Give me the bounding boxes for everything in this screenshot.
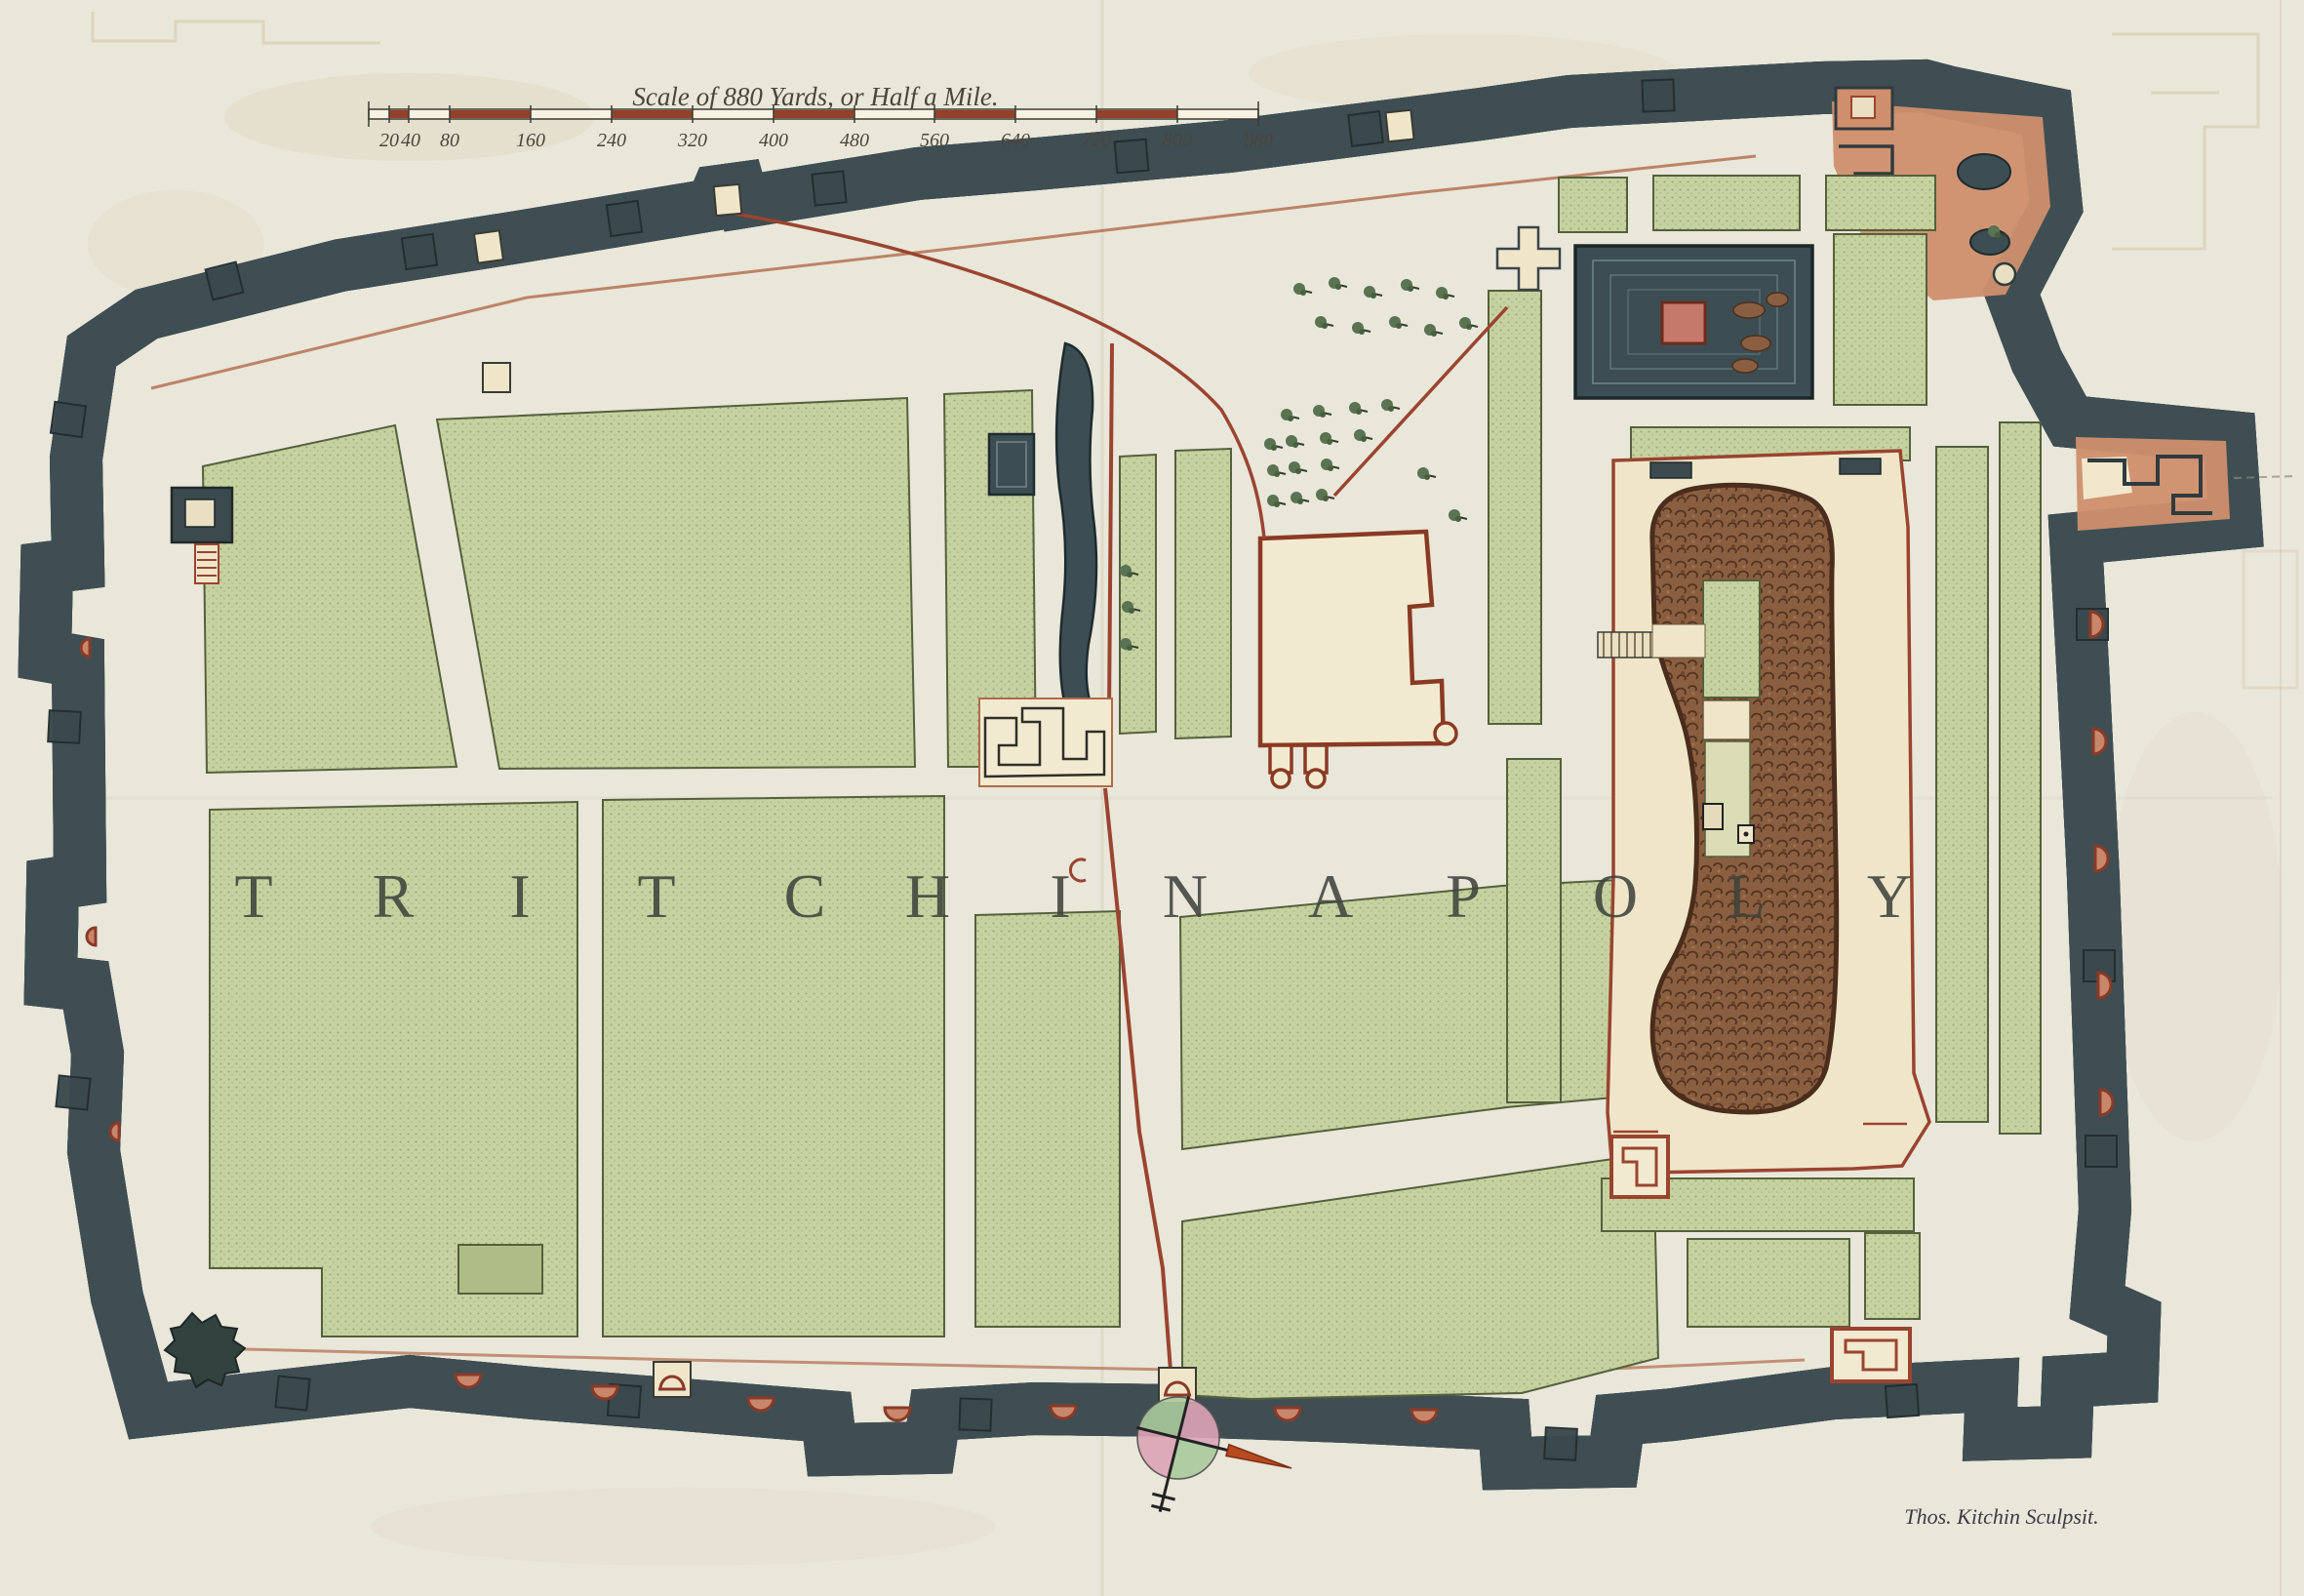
scale-title: Scale of 880 Yards, or Half a Mile.	[632, 82, 998, 111]
city-letter: I	[1050, 861, 1070, 931]
rock-courtyard-path	[1703, 700, 1750, 739]
svg-text:80: 80	[440, 130, 459, 151]
svg-text:640: 640	[1001, 130, 1030, 151]
block-n-large	[437, 398, 915, 769]
rock-courtyard-green	[1703, 580, 1760, 698]
nested-red-structure-b	[1832, 1329, 1910, 1381]
antique-map-tritchinapoly: T R I T C H I N A P O L Y Scale of 880 Y…	[0, 0, 2304, 1596]
svg-text:40: 40	[401, 130, 420, 151]
round-bastion	[1994, 263, 2015, 285]
strip-mid-a	[1120, 455, 1156, 734]
rock-shrine-a	[1703, 804, 1723, 829]
block-se-b	[1865, 1233, 1920, 1319]
headland-pond	[1958, 154, 2010, 189]
svg-text:800: 800	[1163, 130, 1192, 151]
city-letter: L	[1727, 861, 1765, 931]
city-letter: O	[1593, 861, 1638, 931]
city-letter: A	[1308, 861, 1353, 931]
city-letter: R	[373, 861, 415, 931]
svg-text:320: 320	[677, 130, 707, 151]
tank-island	[1662, 302, 1705, 343]
svg-text:160: 160	[516, 130, 545, 151]
arch-gate-west	[654, 1362, 691, 1397]
strip-fort-west-upper	[1489, 291, 1541, 724]
city-letter: T	[234, 861, 272, 931]
svg-text:400: 400	[759, 130, 788, 151]
city-letter: N	[1163, 861, 1208, 931]
temple-tank	[1575, 246, 1812, 398]
central-gate-maze	[979, 698, 1112, 786]
nested-red-structure-a	[1611, 1137, 1668, 1197]
fort-building-b	[1840, 459, 1881, 474]
strip-east-a	[1936, 447, 1988, 1122]
svg-text:480: 480	[840, 130, 869, 151]
strip-fort-west-lower	[1507, 759, 1561, 1102]
strip-east-b	[2000, 422, 2041, 1134]
svg-text:560: 560	[920, 130, 949, 151]
city-letter: C	[784, 861, 826, 931]
fort-building-a	[1650, 462, 1691, 478]
square-pond	[989, 434, 1034, 495]
city-letter: Y	[1867, 861, 1912, 931]
svg-text:20: 20	[379, 130, 399, 151]
block-se-a	[1688, 1239, 1849, 1327]
city-letter: P	[1446, 861, 1481, 931]
svg-text:720: 720	[1082, 130, 1111, 151]
city-letter: T	[637, 861, 675, 931]
city-letter: H	[905, 861, 950, 931]
svg-text:880: 880	[1244, 130, 1273, 151]
map-canvas: T R I T C H I N A P O L Y Scale of 880 Y…	[0, 0, 2304, 1596]
block-center-south	[975, 911, 1120, 1327]
svg-text:240: 240	[597, 130, 626, 151]
engraver-signature: Thos. Kitchin Sculpsit.	[1904, 1504, 2098, 1529]
city-letter: I	[509, 861, 530, 931]
block-tank-east	[1834, 234, 1927, 405]
strip-mid-b	[1175, 449, 1231, 738]
